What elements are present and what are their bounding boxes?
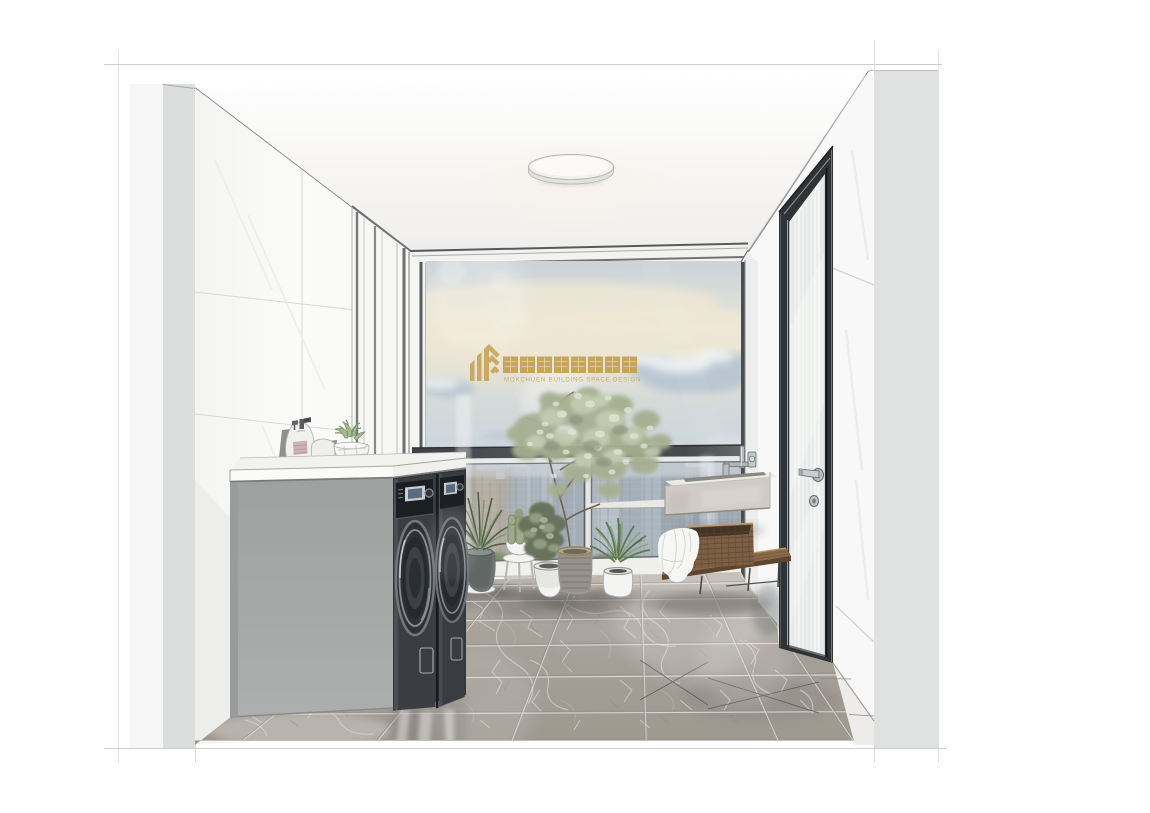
svg-text:MOKCHUEN BUILDING SPACE DESIGN: MOKCHUEN BUILDING SPACE DESIGN (504, 377, 641, 384)
